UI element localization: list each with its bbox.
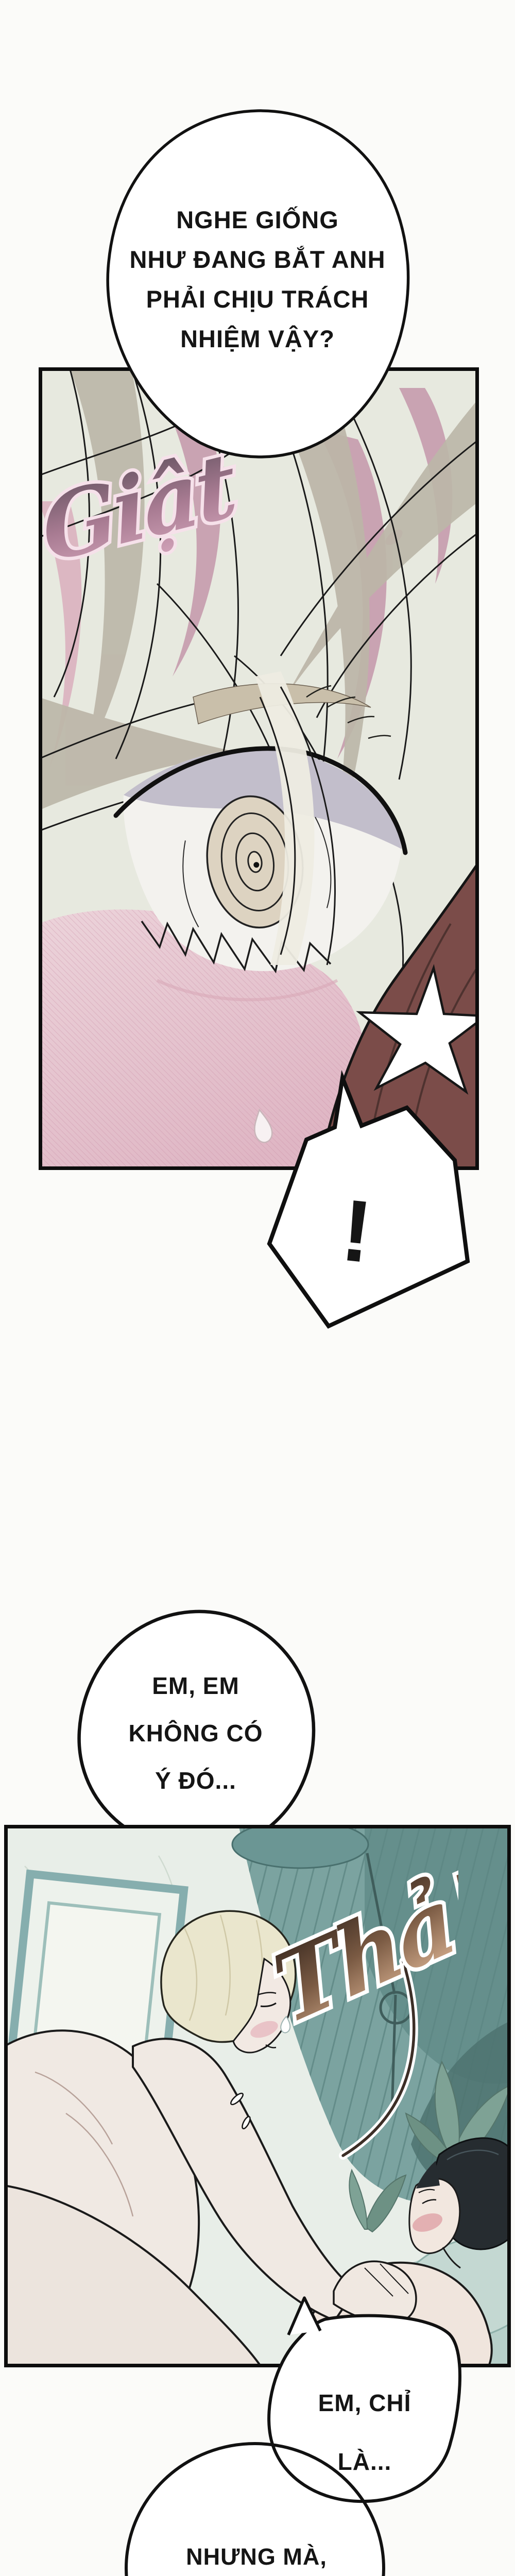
bubble1-line2: NHƯ ĐANG BẮT ANH [129,246,385,273]
comic-page: Giật NGHE GIỐNG NHƯ ĐANG BẮT ANH PHẢI CH… [0,0,515,2576]
bubble3-line1: EM, CHỈ [318,2389,411,2416]
speech-bubble-1: NGHE GIỐNG NHƯ ĐANG BẮT ANH PHẢI CHỊU TR… [93,100,422,471]
sfx-tha-text: Thả! [263,1870,458,2046]
bubble1-line4: NHIỆM VẬY? [180,325,335,352]
bubble2-line1: EM, EM [152,1672,239,1699]
bubble3-line2: LÀ... [338,2448,392,2475]
bubble4-line1: NHƯNG MÀ, [186,2544,327,2570]
lamp-shade-icon [232,1825,368,1868]
bubble1-line1: NGHE GIỐNG [176,206,339,233]
exclaim-bubble: ! [247,1061,484,1340]
bubble2-line2: KHÔNG CÓ [129,1720,263,1747]
bubble1-line3: PHẢI CHỊU TRÁCH [146,285,369,313]
bubble2-line3: Ý ĐÓ... [155,1767,236,1794]
sfx-tha: Thả! [263,1870,458,2097]
bubble-cluster-bottom: EM, CHỈ LÀ... NHƯNG MÀ, ANH CŨNG VẬY. [118,2282,469,2576]
